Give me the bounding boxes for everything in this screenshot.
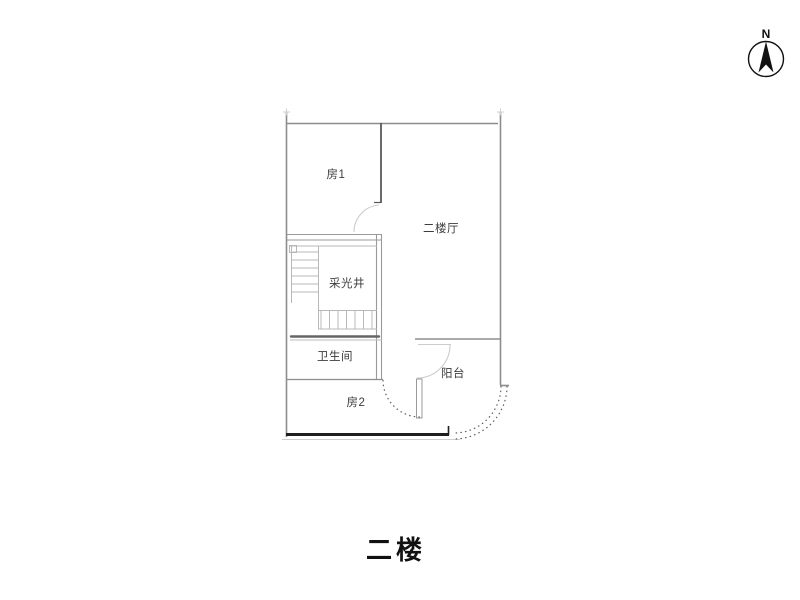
floor-plan-page: 房1 二楼厅 采光井 卫生间 房2 阳台 N 二楼 xyxy=(0,0,800,600)
balcony-rail-outer-arc xyxy=(454,386,507,439)
stair-start-post xyxy=(290,246,297,253)
room-label-bathroom: 卫生间 xyxy=(317,349,353,363)
room1-door-arc xyxy=(354,205,379,232)
room-label-balcony: 阳台 xyxy=(441,366,465,380)
outer-walls xyxy=(286,112,509,437)
tick-top-left xyxy=(283,109,290,116)
page-title: 二楼 xyxy=(366,535,426,565)
room-label-room2: 房2 xyxy=(347,396,366,409)
room2-door-leaf xyxy=(417,379,423,418)
room2-door-swing-dashed xyxy=(383,380,420,417)
room-labels: 房1 二楼厅 采光井 卫生间 房2 阳台 xyxy=(317,168,465,409)
compass-needle xyxy=(759,42,774,73)
north-label: N xyxy=(762,27,771,41)
room-label-light-well: 采光井 xyxy=(329,276,365,290)
balcony-rail-inner-arc xyxy=(454,386,501,433)
dashed-arcs xyxy=(383,380,507,439)
tick-top-right xyxy=(497,109,504,116)
room-label-room1: 房1 xyxy=(327,168,346,181)
north-arrow: N xyxy=(749,27,784,77)
room-label-hall: 二楼厅 xyxy=(423,221,459,235)
floor-plan-canvas: 房1 二楼厅 采光井 卫生间 房2 阳台 N 二楼 xyxy=(0,0,800,600)
partition-walls xyxy=(374,123,381,203)
construction-marks xyxy=(282,109,504,440)
bottom-wall-group xyxy=(286,426,449,435)
